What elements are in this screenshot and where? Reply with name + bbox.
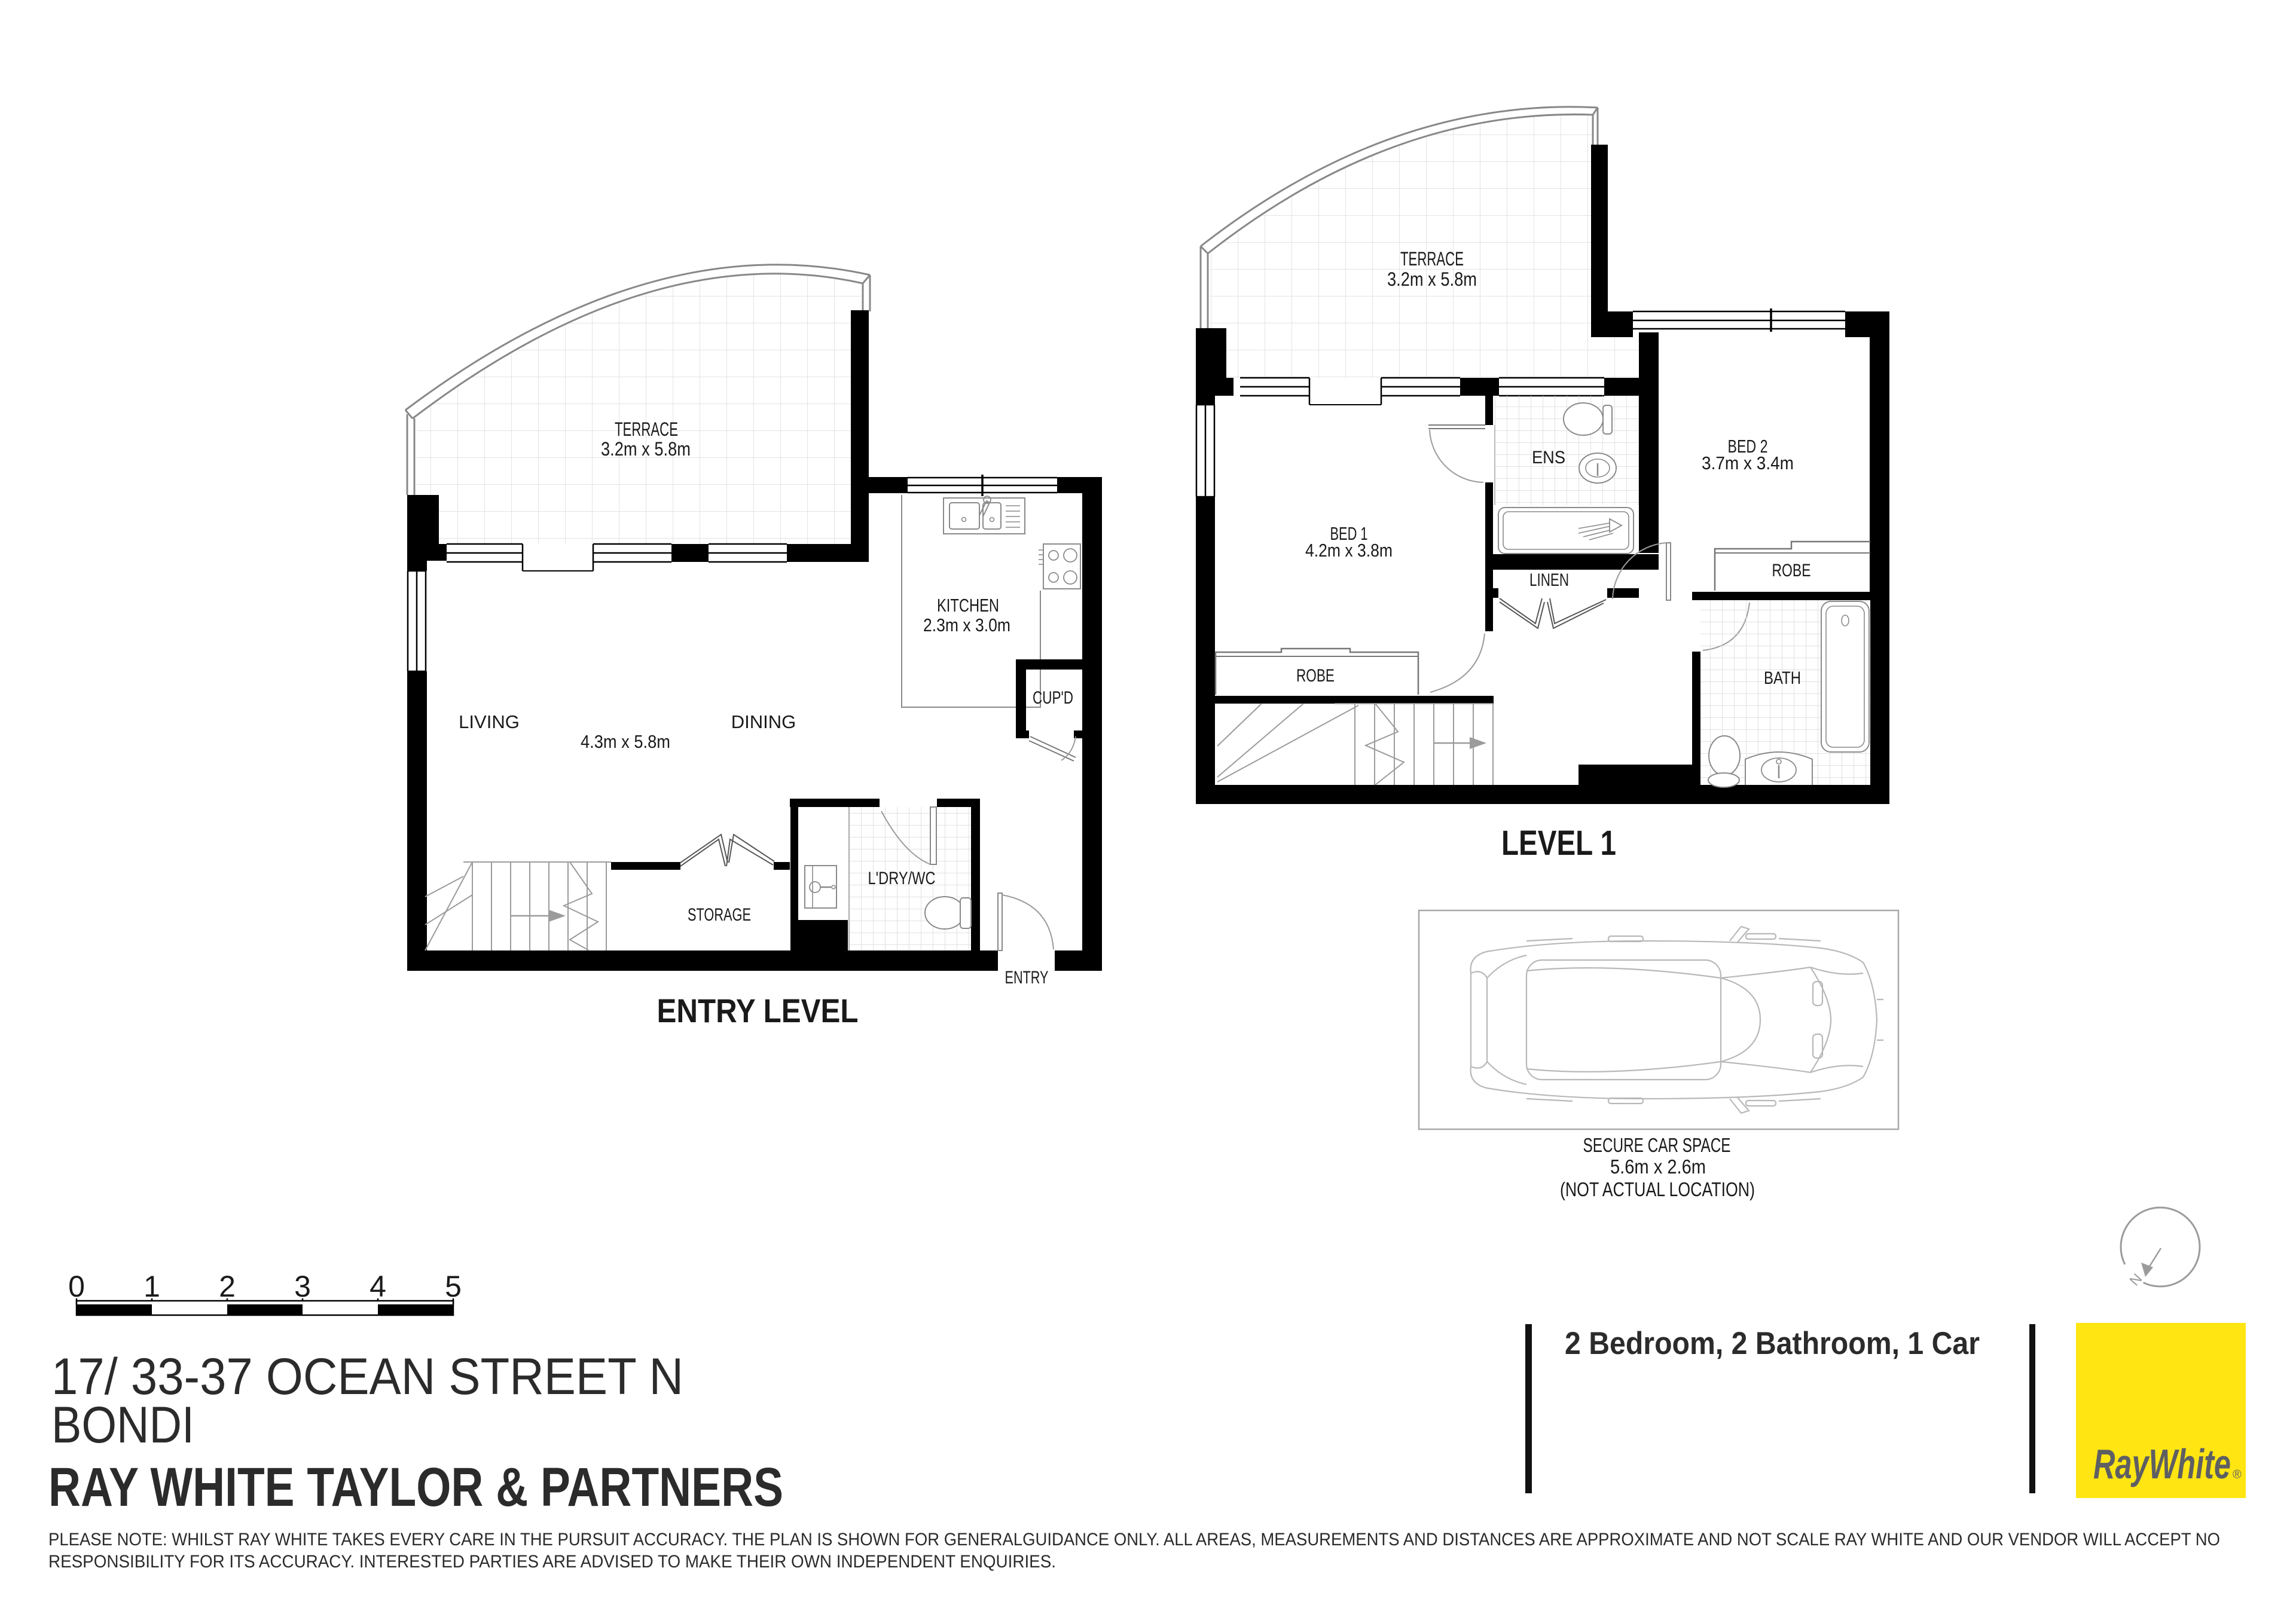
- svg-text:4: 4: [370, 1270, 386, 1303]
- svg-text:RAY WHITE TAYLOR & PARTNERS: RAY WHITE TAYLOR & PARTNERS: [48, 1457, 783, 1518]
- svg-text:TERRACE: TERRACE: [1400, 248, 1464, 270]
- svg-text:DINING: DINING: [731, 711, 796, 732]
- svg-text:®: ®: [2233, 1468, 2242, 1481]
- svg-text:STORAGE: STORAGE: [688, 905, 751, 925]
- svg-text:KITCHEN: KITCHEN: [937, 595, 999, 616]
- svg-text:2: 2: [219, 1270, 236, 1303]
- svg-text:2.3m x 3.0m: 2.3m x 3.0m: [923, 615, 1010, 635]
- svg-text:BATH: BATH: [1764, 668, 1801, 688]
- svg-text:ENTRY LEVEL: ENTRY LEVEL: [657, 992, 859, 1029]
- svg-text:4.3m x 5.8m: 4.3m x 5.8m: [581, 731, 670, 752]
- svg-text:4.2m x 3.8m: 4.2m x 3.8m: [1305, 540, 1393, 561]
- svg-text:0: 0: [68, 1270, 85, 1303]
- svg-text:ENS: ENS: [1532, 448, 1565, 467]
- svg-text:3.2m x 5.8m: 3.2m x 5.8m: [1387, 268, 1477, 290]
- svg-text:RayWhite: RayWhite: [2093, 1441, 2231, 1487]
- svg-text:BONDI: BONDI: [51, 1396, 194, 1454]
- svg-text:PLEASE NOTE: WHILST RAY WHITE: PLEASE NOTE: WHILST RAY WHITE TAKES EVER…: [48, 1530, 2220, 1549]
- svg-text:SECURE CAR SPACE: SECURE CAR SPACE: [1583, 1134, 1731, 1156]
- svg-text:CUP'D: CUP'D: [1033, 688, 1073, 708]
- svg-text:ROBE: ROBE: [1772, 561, 1811, 580]
- svg-text:1: 1: [143, 1270, 160, 1303]
- svg-text:TERRACE: TERRACE: [615, 418, 678, 440]
- svg-text:3: 3: [294, 1270, 311, 1303]
- svg-text:3.2m x 5.8m: 3.2m x 5.8m: [601, 438, 691, 460]
- svg-text:5.6m x 2.6m: 5.6m x 2.6m: [1610, 1156, 1706, 1178]
- svg-text:5: 5: [445, 1270, 462, 1303]
- svg-text:ENTRY: ENTRY: [1005, 968, 1049, 988]
- svg-text:L'DRY/WC: L'DRY/WC: [868, 869, 936, 888]
- svg-text:2 Bedroom, 2 Bathroom, 1 Car: 2 Bedroom, 2 Bathroom, 1 Car: [1565, 1326, 1980, 1361]
- svg-text:RESPONSIBILITY FOR ITS ACCURAC: RESPONSIBILITY FOR ITS ACCURACY. INTERES…: [48, 1552, 1056, 1572]
- svg-text:LIVING: LIVING: [459, 711, 520, 732]
- svg-text:(NOT ACTUAL LOCATION): (NOT ACTUAL LOCATION): [1560, 1178, 1755, 1200]
- svg-text:ROBE: ROBE: [1296, 666, 1335, 686]
- svg-text:LEVEL 1: LEVEL 1: [1501, 824, 1616, 863]
- svg-text:LINEN: LINEN: [1529, 570, 1569, 590]
- svg-text:3.7m x 3.4m: 3.7m x 3.4m: [1702, 453, 1794, 473]
